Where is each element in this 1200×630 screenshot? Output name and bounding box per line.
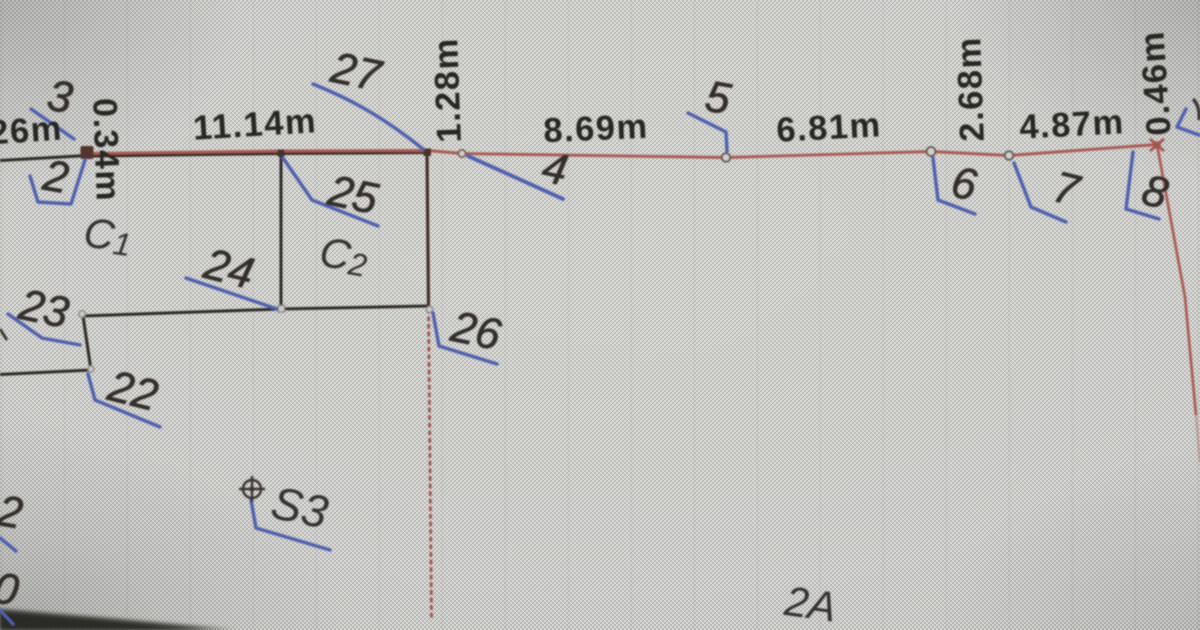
svg-text:26: 26 [446,302,506,360]
svg-text:0.34m: 0.34m [85,97,127,202]
svg-text:11.14m: 11.14m [192,102,318,148]
svg-text:1.28m: 1.28m [427,37,469,144]
svg-text:6.81m: 6.81m [775,106,882,149]
svg-text:25: 25 [323,166,383,224]
svg-text:23: 23 [14,280,74,338]
svg-text:2A: 2A [781,577,839,630]
svg-text:0.46m: 0.46m [1133,29,1178,137]
svg-text:4.87m: 4.87m [1018,103,1125,146]
svg-text:2.68m: 2.68m [950,36,992,143]
